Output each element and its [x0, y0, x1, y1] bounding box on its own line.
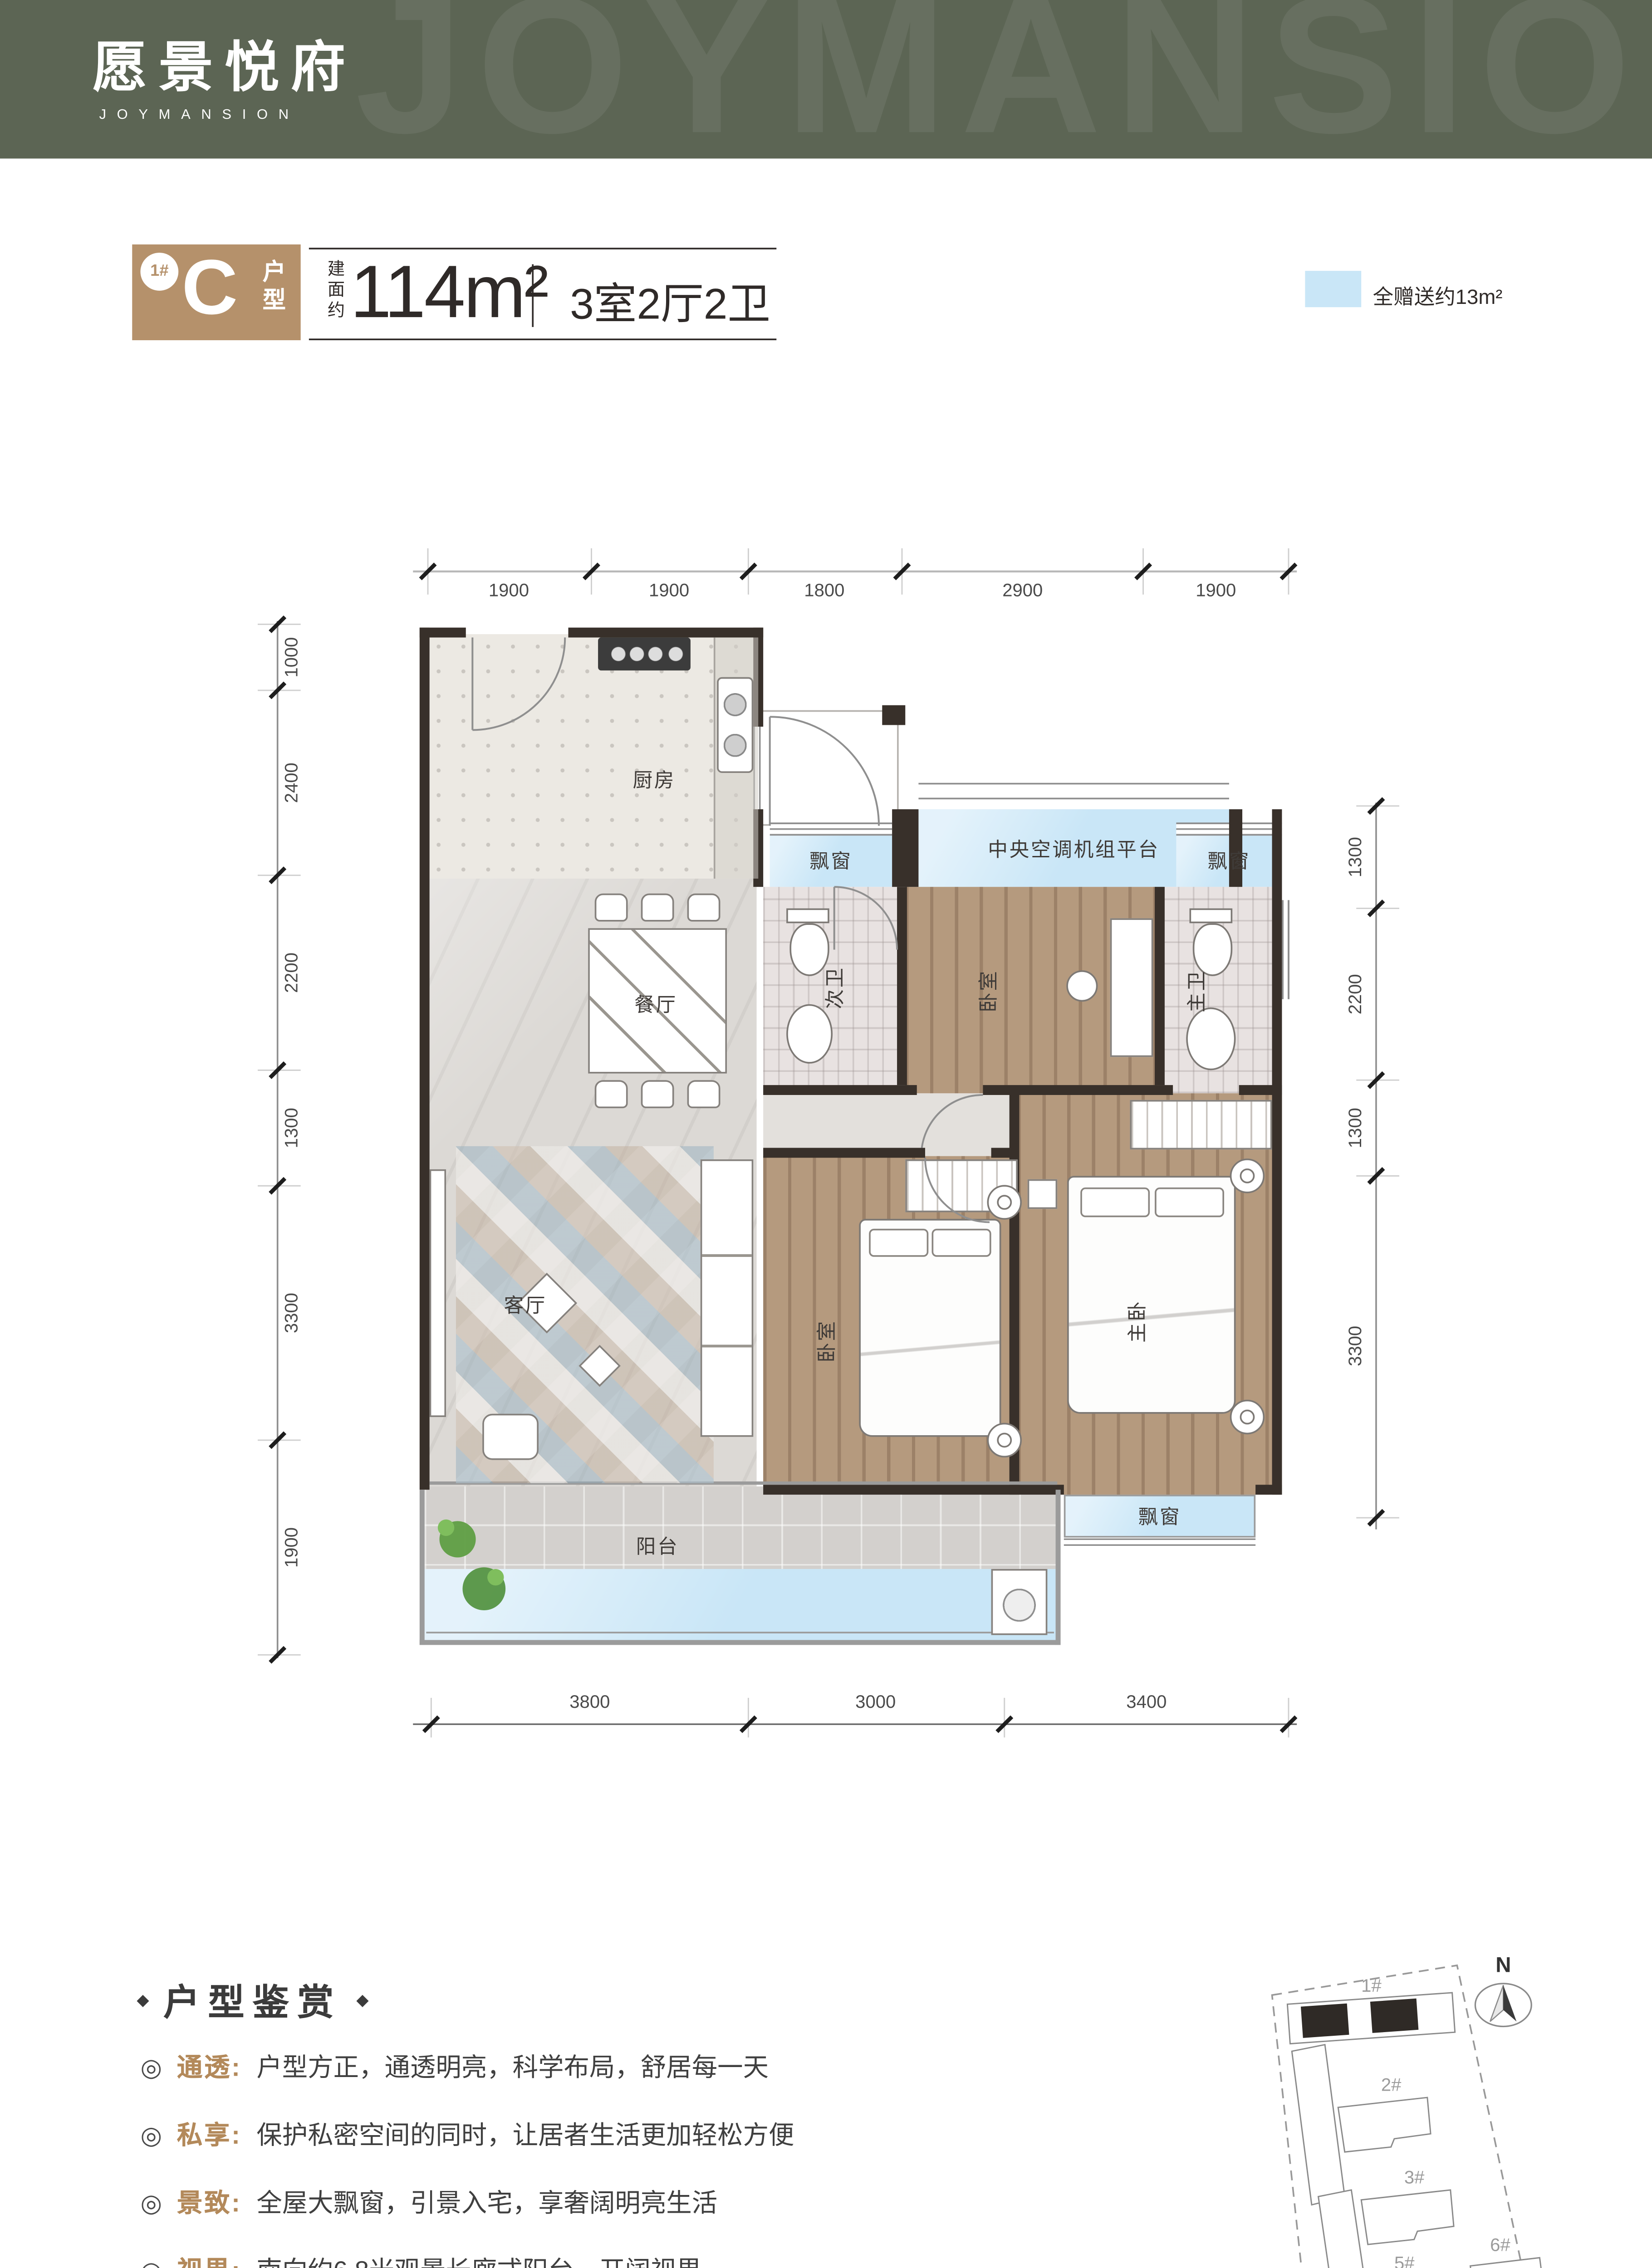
wall	[1272, 809, 1282, 1495]
balcony-window	[420, 1640, 1061, 1645]
stove	[598, 637, 691, 670]
building-1-highlight	[1287, 1993, 1455, 2044]
spec-rule-bottom	[309, 338, 776, 341]
spec-divider	[532, 264, 534, 327]
svg-text:3000: 3000	[855, 1692, 896, 1712]
feature-item: ◎ 私享: 保护私密空间的同时，让居者生活更加轻松方便	[140, 2116, 1164, 2152]
wall	[420, 628, 430, 1490]
bullseye-icon: ◎	[140, 2121, 162, 2151]
svg-text:3400: 3400	[1126, 1692, 1167, 1712]
toilet-tank	[1190, 909, 1233, 924]
features-heading: ◆ 户型鉴赏 ◆	[137, 1974, 368, 2027]
svg-text:1900: 1900	[281, 1527, 301, 1568]
wall	[1239, 1085, 1282, 1095]
balcony-wall	[1056, 1490, 1061, 1645]
svg-text:2900: 2900	[1002, 580, 1043, 600]
site-map: 1# 2# 3# 5# 6# N	[1242, 1949, 1564, 2268]
dimension-chain-top: 19001900 18002900 1900	[397, 545, 1305, 601]
armchair	[482, 1414, 539, 1460]
label-bay-window-2: 飘窗	[1208, 846, 1251, 875]
building-label: 6#	[1490, 2235, 1510, 2255]
label-kitchen: 厨房	[632, 766, 676, 794]
bullseye-icon: ◎	[140, 2188, 162, 2218]
feature-label: 私享:	[177, 2116, 242, 2152]
area-value: 114m²	[350, 249, 547, 335]
dining-chair	[595, 894, 628, 922]
feature-text: 户型方正，通透明亮，科学布局，舒居每一天	[256, 2048, 769, 2084]
toilet-tank	[786, 909, 829, 924]
label-bedroom2: 卧室	[812, 1320, 840, 1363]
pillow	[869, 1229, 928, 1257]
label-balcony: 阳台	[636, 1532, 679, 1560]
wall	[763, 1485, 1064, 1495]
label-master-bedroom: 主卧	[1123, 1300, 1151, 1343]
watermark-text: JOYMANSION	[355, 0, 1652, 159]
svg-text:3300: 3300	[1346, 1326, 1365, 1366]
kitchen-sink	[717, 677, 753, 773]
svg-text:2400: 2400	[281, 763, 301, 803]
feature-text: 南向约6.8米观景长廊式阳台、开阔视界	[256, 2251, 701, 2268]
wall	[892, 809, 918, 887]
unit-type-badge: 1# C 户型	[132, 244, 300, 340]
dimension-chain-left: 1000 2400 2200 1300 3300 1900	[248, 611, 314, 1668]
svg-text:3800: 3800	[569, 1692, 610, 1712]
washing-machine	[991, 1569, 1048, 1635]
bullseye-icon: ◎	[140, 2256, 162, 2268]
wall	[882, 705, 905, 725]
label-master-bath: 主卫	[1182, 969, 1210, 1012]
feature-item: ◎ 景致: 全屋大飘窗，引景入宅，享奢阔明亮生活	[140, 2183, 1164, 2219]
pillow	[932, 1229, 991, 1257]
window-bay1	[770, 822, 892, 836]
nightstand	[1028, 1179, 1058, 1209]
building-number-chip: 1#	[140, 253, 178, 291]
sofa	[701, 1159, 754, 1437]
unit-type-suffix: 户型	[258, 259, 291, 316]
label-dining: 餐厅	[634, 990, 677, 1018]
entry-foyer	[757, 710, 899, 826]
feature-text: 全屋大飘窗，引景入宅，享奢阔明亮生活	[256, 2183, 717, 2219]
bullseye-icon: ◎	[140, 2053, 162, 2083]
wardrobe	[905, 1159, 1018, 1212]
wall	[1010, 1093, 1020, 1495]
bathroom-sink	[1186, 1007, 1235, 1070]
dimension-chain-right: 1300 2200 1300 3300	[1346, 793, 1412, 1540]
svg-text:1300: 1300	[281, 1108, 301, 1148]
svg-text:1900: 1900	[1196, 580, 1236, 600]
building-label: 1#	[1361, 1976, 1382, 1996]
feature-item: ◎ 通透: 户型方正，通透明亮，科学布局，舒居每一天	[140, 2048, 1164, 2084]
pillow	[1080, 1188, 1150, 1217]
label-bedroom: 卧室	[974, 969, 1002, 1012]
svg-text:3300: 3300	[281, 1293, 301, 1333]
north-compass-icon: N	[1475, 1953, 1531, 2026]
feature-text: 保护私密空间的同时，让居者生活更加轻松方便	[256, 2116, 794, 2152]
svg-text:1300: 1300	[1346, 1108, 1365, 1148]
label-living: 客厅	[504, 1290, 547, 1319]
feature-label: 景致:	[177, 2183, 242, 2219]
svg-text:1800: 1800	[804, 580, 844, 600]
legend-gift-swatch	[1305, 271, 1361, 307]
svg-text:2200: 2200	[281, 953, 301, 993]
wall	[569, 628, 764, 638]
svg-text:1900: 1900	[489, 580, 529, 600]
feature-label: 视界:	[177, 2251, 242, 2268]
wall	[1255, 1485, 1282, 1495]
balcony-wall	[420, 1490, 425, 1645]
room-kitchen-floor	[426, 634, 756, 879]
poster-canvas: JOYMANSION 愿景悦府 JOYMANSION 1# C 户型 建面约 1…	[0, 0, 1652, 2268]
svg-text:1000: 1000	[281, 637, 301, 678]
balcony-gift-strip	[425, 1569, 1056, 1642]
toilet	[1193, 923, 1232, 976]
dining-chair	[687, 1080, 721, 1108]
feature-item: ◎ 视界: 南向约6.8米观景长廊式阳台、开阔视界	[140, 2251, 1164, 2268]
feature-label: 通透:	[177, 2048, 242, 2084]
label-bath2: 次卫	[820, 966, 848, 1009]
ac-platform-railing	[918, 783, 1229, 799]
legend-gift-label: 全赠送约13m²	[1373, 279, 1503, 310]
master-bath-window	[1282, 900, 1292, 999]
brand-header: JOYMANSION 愿景悦府 JOYMANSION	[0, 0, 1652, 159]
label-bay-window-1: 飘窗	[809, 846, 853, 875]
svg-text:2200: 2200	[1346, 974, 1365, 1014]
north-label: N	[1495, 1953, 1511, 1977]
building-label: 2#	[1381, 2075, 1402, 2095]
tv-cabinet	[430, 1169, 446, 1417]
area-label: 建面约	[324, 259, 349, 322]
balcony-window-inner	[426, 1632, 1054, 1633]
label-bay-window-3: 飘窗	[1138, 1502, 1181, 1530]
pillow	[1155, 1188, 1224, 1217]
wall	[763, 1085, 917, 1095]
dining-chair	[641, 1080, 674, 1108]
bathroom-sink	[786, 1004, 833, 1064]
wall	[897, 887, 907, 1085]
brand-logo-en: JOYMANSION	[99, 106, 299, 122]
dimension-chain-bottom: 38003000 3400	[397, 1681, 1305, 1741]
wall	[1155, 887, 1165, 1085]
diamond-icon: ◆	[137, 1991, 148, 2009]
dining-chair	[641, 894, 674, 922]
unit-letter: C	[182, 241, 238, 332]
window-bay3	[1064, 1538, 1255, 1546]
wardrobe	[1130, 1100, 1272, 1149]
features-heading-text: 户型鉴赏	[163, 1974, 342, 2027]
diamond-icon: ◆	[357, 1991, 368, 2009]
dining-chair	[687, 894, 721, 922]
dining-chair	[595, 1080, 628, 1108]
wall	[763, 1148, 925, 1158]
label-ac-platform: 中央空调机组平台	[988, 835, 1160, 863]
svg-text:1300: 1300	[1346, 837, 1365, 877]
building-label: 3#	[1404, 2167, 1425, 2187]
brand-logo-cn: 愿景悦府	[93, 23, 357, 103]
svg-text:1900: 1900	[649, 580, 689, 600]
building-label: 5#	[1394, 2253, 1415, 2268]
desk	[1110, 918, 1153, 1057]
rooms-value: 3室2厅2卫	[570, 271, 770, 332]
